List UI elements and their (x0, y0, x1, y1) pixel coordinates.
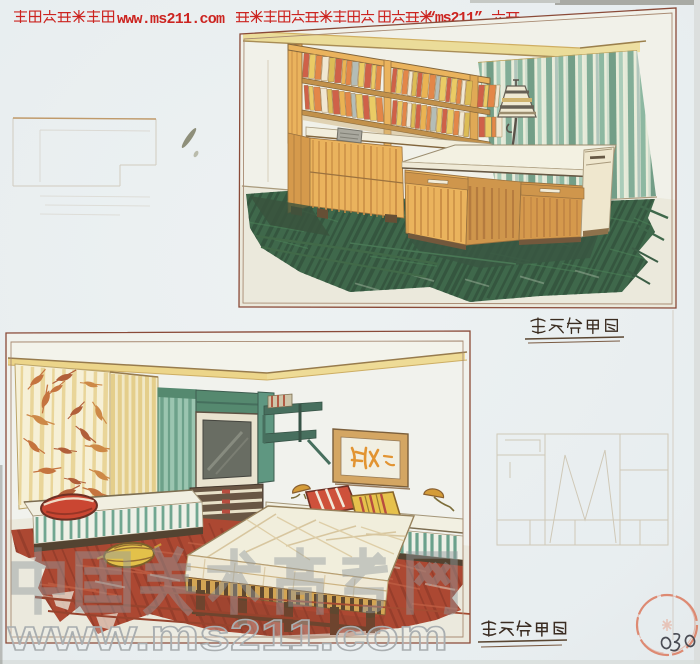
svg-text:www.ms211.com: www.ms211.com (117, 11, 225, 28)
svg-text:www.ms211.com: www.ms211.com (7, 611, 448, 660)
